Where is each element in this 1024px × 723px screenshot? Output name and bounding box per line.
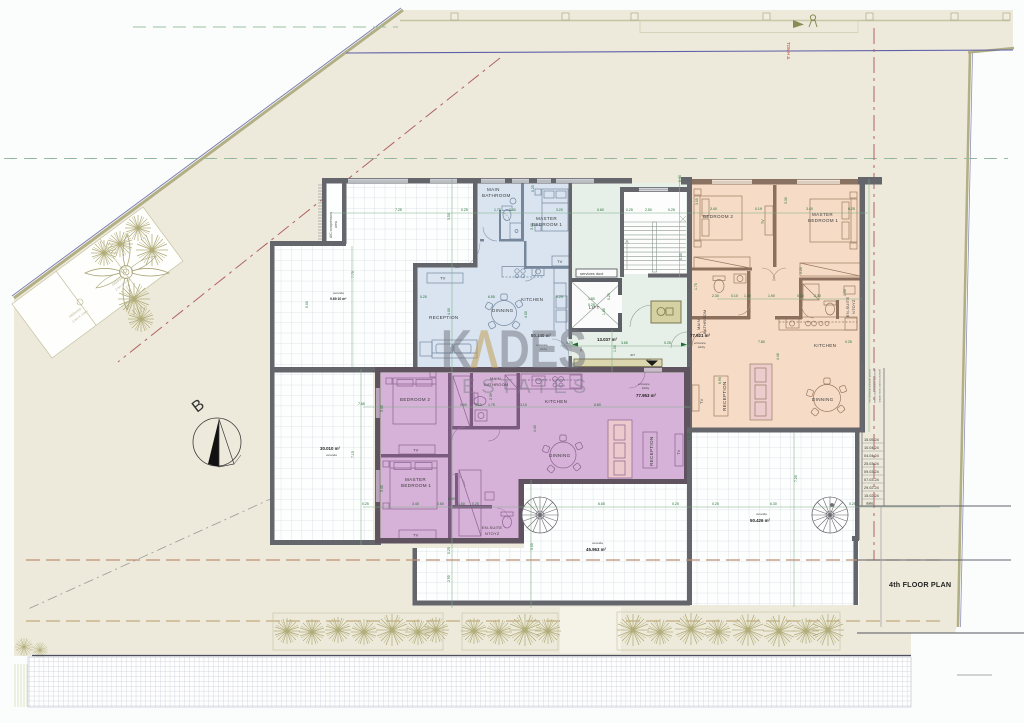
svg-text:veranda: veranda (326, 453, 337, 457)
svg-text:BATHROOM: BATHROOM (482, 193, 511, 198)
svg-text:1.90: 1.90 (768, 294, 775, 298)
svg-text:TOMH Δ: TOMH Δ (786, 42, 791, 59)
svg-text:4.00: 4.00 (524, 311, 528, 318)
svg-text:MAIN: MAIN (487, 187, 500, 192)
svg-text:RECEPTION: RECEPTION (649, 437, 654, 467)
svg-text:4.40: 4.40 (776, 353, 780, 360)
svg-text:veranda: veranda (756, 512, 767, 516)
svg-text:lobby: lobby (642, 386, 650, 390)
svg-text:TV: TV (699, 398, 704, 404)
svg-text:BEDROOM 1: BEDROOM 1 (401, 483, 431, 488)
svg-text:50.426 m²: 50.426 m² (750, 518, 771, 523)
svg-text:1.50: 1.50 (458, 502, 465, 506)
svg-text:veranda: veranda (592, 541, 603, 545)
svg-text:A/C compressors: A/C compressors (329, 212, 333, 238)
svg-text:K: K (441, 319, 472, 380)
svg-text:TV: TV (676, 449, 681, 455)
svg-text:15.02.24: 15.02.24 (864, 494, 879, 498)
svg-text:0.25: 0.25 (848, 207, 855, 211)
svg-text:date: date (866, 502, 873, 506)
svg-text:0.25: 0.25 (687, 433, 691, 440)
svg-text:0.60: 0.60 (597, 208, 604, 212)
svg-text:6.65: 6.65 (598, 502, 605, 506)
svg-text:0.60: 0.60 (437, 502, 444, 506)
svg-text:09.03.24: 09.03.24 (864, 470, 879, 474)
svg-text:402: 402 (646, 358, 651, 362)
svg-text:15.05.24: 15.05.24 (864, 438, 879, 442)
svg-text:0.25: 0.25 (420, 295, 427, 299)
svg-text:2.30: 2.30 (712, 294, 719, 298)
svg-text:EN-SUITE: EN-SUITE (845, 297, 850, 317)
svg-text:7.75: 7.75 (351, 271, 355, 278)
svg-text:BEDROOM 2: BEDROOM 2 (703, 214, 733, 219)
svg-text:0.40: 0.40 (509, 208, 516, 212)
svg-text:KITCHEN: KITCHEN (814, 343, 836, 348)
svg-text:1.50: 1.50 (843, 289, 847, 296)
svg-text:0.10: 0.10 (731, 294, 738, 298)
svg-text:1.80: 1.80 (588, 297, 595, 301)
svg-text:5.00: 5.00 (305, 301, 309, 308)
svg-text:general revision notes added: general revision notes added (878, 369, 882, 403)
svg-text:0.25: 0.25 (362, 502, 369, 506)
svg-text:2.55: 2.55 (447, 575, 451, 582)
svg-text:1.75: 1.75 (494, 208, 501, 212)
svg-text:1.90: 1.90 (744, 294, 751, 298)
svg-text:25.03.24: 25.03.24 (864, 462, 879, 466)
svg-text:3.20: 3.20 (556, 208, 563, 212)
svg-text:DES: DES (499, 319, 587, 380)
svg-text:30.010 m²: 30.010 m² (320, 446, 341, 451)
svg-text:45.963 m²: 45.963 m² (586, 547, 607, 552)
svg-text:0.99: 0.99 (448, 497, 455, 501)
svg-text:29.02.24: 29.02.24 (864, 486, 879, 490)
svg-text:MASTER: MASTER (405, 477, 426, 482)
svg-text:as built updated drawings set: as built updated drawings set (868, 369, 872, 403)
svg-text:TV: TV (557, 259, 563, 264)
svg-text:0.10: 0.10 (475, 403, 482, 407)
svg-text:10.04.24: 10.04.24 (864, 446, 879, 450)
svg-text:1.85: 1.85 (602, 308, 606, 315)
svg-text:3.40: 3.40 (380, 405, 384, 412)
svg-text:0.60: 0.60 (460, 403, 467, 407)
svg-text:0.25: 0.25 (849, 502, 856, 506)
svg-text:TV: TV (413, 533, 419, 538)
svg-text:DINNING: DINNING (549, 453, 571, 458)
svg-text:6.80: 6.80 (594, 403, 601, 407)
svg-text:77.921 m²: 77.921 m² (690, 333, 711, 338)
svg-text:07.03.24: 07.03.24 (864, 478, 879, 482)
svg-text:issued for construction review: issued for construction review (873, 369, 877, 403)
svg-text:3.45: 3.45 (412, 502, 419, 506)
svg-text:BEDROOM 1: BEDROOM 1 (532, 222, 562, 227)
svg-text:7.15: 7.15 (351, 451, 355, 458)
svg-text:407: 407 (630, 353, 635, 357)
svg-text:MASTER: MASTER (536, 216, 557, 221)
svg-text:BEDROOM 1: BEDROOM 1 (808, 218, 838, 223)
svg-text:0.25: 0.25 (461, 208, 468, 212)
svg-text:TV: TV (413, 448, 419, 453)
svg-text:TV: TV (440, 276, 446, 281)
svg-text:0.25: 0.25 (607, 293, 611, 300)
svg-text:9.69 10 m²: 9.69 10 m² (330, 297, 347, 301)
svg-text:3.50: 3.50 (447, 213, 451, 220)
svg-text:2.30: 2.30 (814, 294, 821, 298)
svg-text:7.20: 7.20 (794, 475, 798, 482)
svg-text:3.19: 3.19 (520, 403, 527, 407)
svg-text:3.40: 3.40 (806, 207, 813, 211)
svg-text:3.05: 3.05 (695, 198, 699, 205)
svg-text:KITCHEN: KITCHEN (545, 399, 567, 404)
svg-text:KITCHEN: KITCHEN (521, 297, 543, 302)
svg-text:TV: TV (761, 219, 765, 224)
svg-text:3.40: 3.40 (710, 207, 717, 211)
svg-text:BEDROOM 2: BEDROOM 2 (400, 397, 430, 402)
svg-text:BATHROOM: BATHROOM (702, 310, 707, 334)
svg-text:EN-SUITE: EN-SUITE (482, 525, 502, 530)
svg-text:DINNING: DINNING (492, 308, 514, 313)
svg-text:1.75: 1.75 (694, 283, 698, 290)
svg-text:6.55: 6.55 (488, 295, 495, 299)
svg-text:NTOYZ: NTOYZ (851, 299, 856, 314)
svg-text:0.25: 0.25 (556, 295, 563, 299)
svg-text:3.40: 3.40 (380, 485, 384, 492)
svg-text:3.65: 3.65 (621, 341, 628, 345)
svg-text:MAIN: MAIN (696, 319, 701, 330)
svg-text:0.10: 0.10 (797, 294, 804, 298)
svg-text:ESTATES: ESTATES (462, 376, 592, 398)
svg-text:0.25: 0.25 (712, 502, 719, 506)
svg-text:77.953 m²: 77.953 m² (636, 393, 657, 398)
svg-text:6.30: 6.30 (770, 502, 777, 506)
svg-text:0.19: 0.19 (755, 207, 762, 211)
svg-text:4.40: 4.40 (533, 425, 537, 432)
svg-text:1.75: 1.75 (488, 403, 495, 407)
svg-text:0.25: 0.25 (672, 502, 679, 506)
svg-text:7.65: 7.65 (358, 402, 365, 406)
svg-text:5.35: 5.35 (679, 253, 683, 260)
svg-text:Λ: Λ (470, 319, 499, 380)
svg-text:04.04.24: 04.04.24 (864, 454, 879, 458)
svg-text:2.50: 2.50 (645, 208, 652, 212)
svg-text:0.40: 0.40 (678, 175, 682, 182)
svg-text:3.30: 3.30 (784, 197, 788, 204)
svg-text:0.25: 0.25 (668, 208, 675, 212)
svg-text:MASTER: MASTER (812, 212, 833, 217)
svg-text:0.25: 0.25 (531, 185, 535, 192)
svg-text:area: area (334, 221, 338, 228)
svg-text:veranda: veranda (333, 291, 344, 295)
svg-text:7.80: 7.80 (758, 340, 765, 344)
svg-text:DINNING: DINNING (812, 397, 834, 402)
svg-text:0.25: 0.25 (664, 341, 671, 345)
svg-text:4th FLOOR PLAN: 4th FLOOR PLAN (889, 580, 951, 589)
svg-text:0.25: 0.25 (472, 502, 479, 506)
svg-text:lobby: lobby (698, 345, 706, 349)
svg-text:0.25: 0.25 (626, 208, 633, 212)
svg-text:NTOYZ: NTOYZ (485, 531, 500, 536)
svg-text:LIFT: LIFT (589, 305, 600, 310)
svg-text:0.25: 0.25 (845, 340, 852, 344)
svg-text:13.037 m²: 13.037 m² (597, 337, 618, 342)
svg-text:services duct: services duct (580, 271, 604, 276)
svg-text:5.05: 5.05 (530, 543, 534, 550)
svg-text:4.00: 4.00 (447, 308, 451, 315)
svg-text:RECEPTION: RECEPTION (722, 382, 727, 412)
svg-text:1.50: 1.50 (613, 345, 617, 352)
svg-text:2.20: 2.20 (799, 267, 803, 274)
svg-text:7.25: 7.25 (395, 208, 402, 212)
svg-text:0.25: 0.25 (447, 547, 451, 554)
